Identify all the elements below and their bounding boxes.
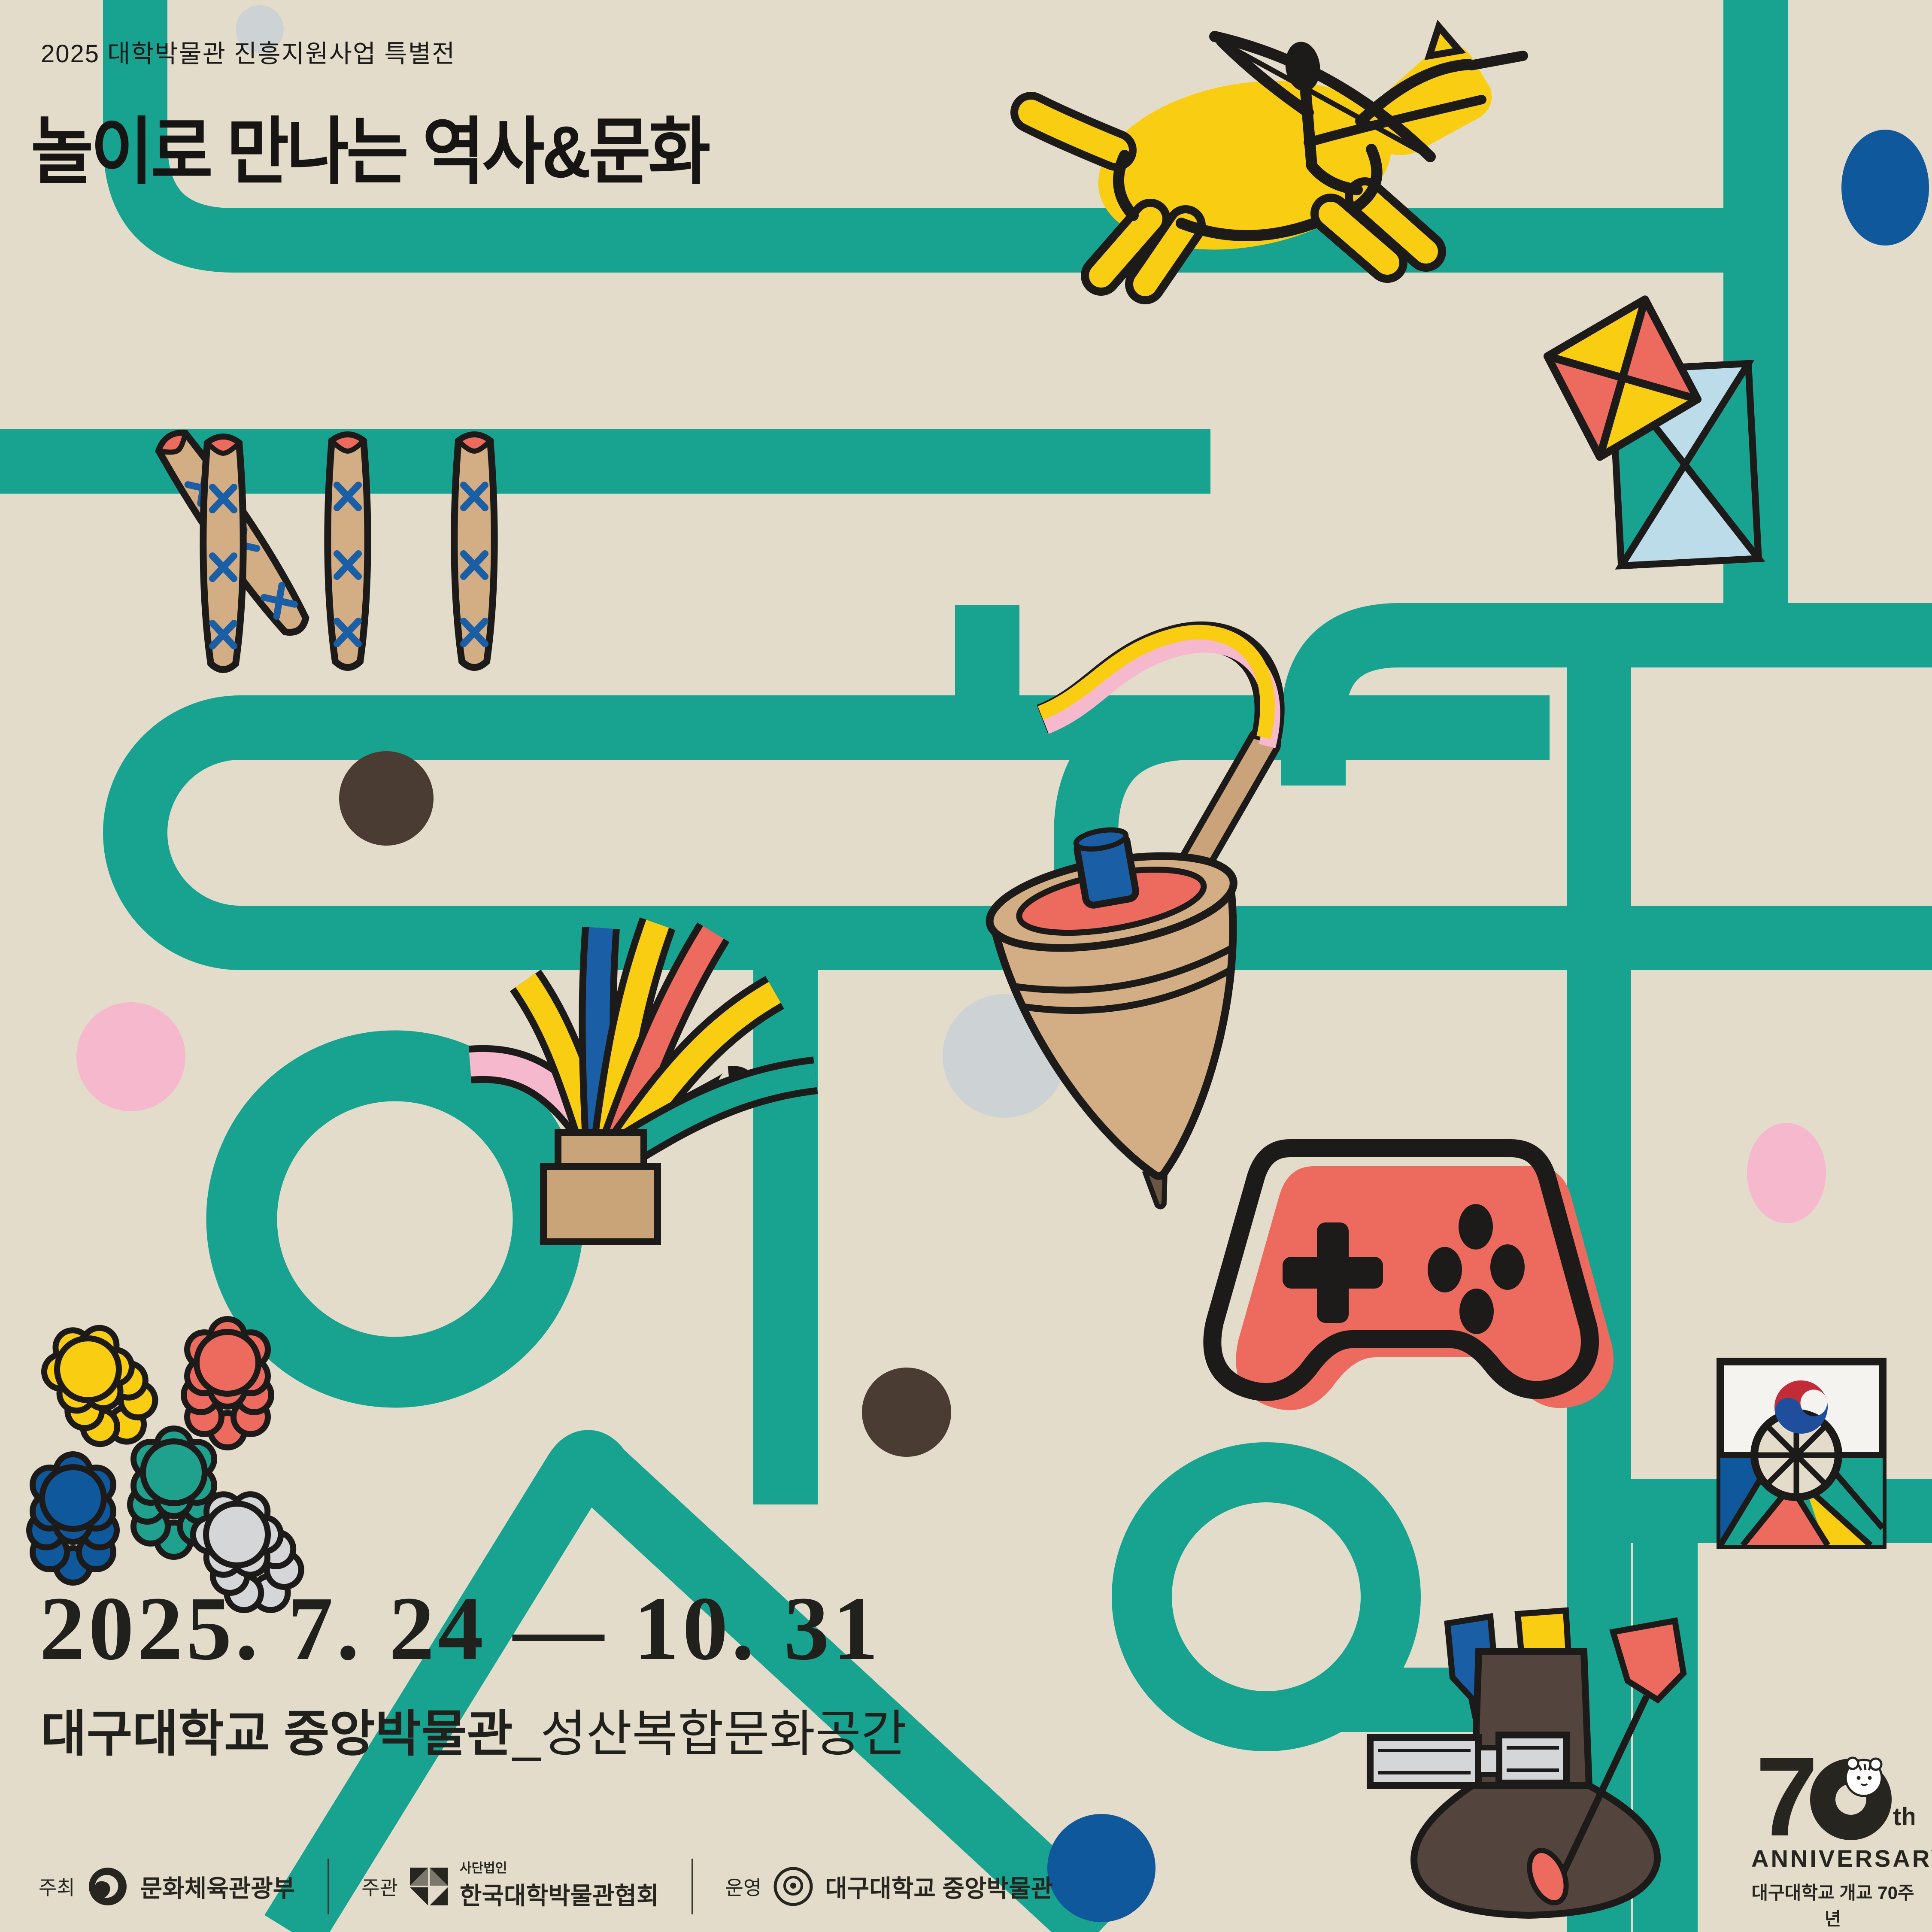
operator-label: 운영: [725, 1872, 762, 1901]
footer-divider: [328, 1859, 329, 1914]
kaum-logo-icon: [409, 1867, 449, 1906]
anniversary-word: ANNIVERSARY: [1751, 1844, 1914, 1872]
exhibition-dates: 2025. 7. 24 — 10. 31: [39, 1576, 882, 1681]
venue-annex: _성산복합문화공간: [513, 1706, 907, 1762]
operator-credit: 운영 대구대학교 중앙박물관: [725, 1866, 1053, 1907]
brown-dot-left: [339, 751, 434, 846]
tiger-mascot-icon: [1846, 1758, 1882, 1796]
host-name: 문화체육관광부: [140, 1869, 295, 1904]
blue-dot-top-right: [1841, 130, 1929, 246]
operator-name: 대구대학교 중앙박물관: [825, 1869, 1053, 1904]
pink-dot-right: [1747, 1123, 1826, 1223]
venue-main: 대구대학교 중앙박물관: [41, 1706, 513, 1762]
organizer-label: 주관: [361, 1872, 398, 1901]
organizer-pre: 사단법인: [460, 1862, 659, 1875]
blue-dot-bottom: [1047, 1814, 1156, 1922]
game-controller-illustration: [1212, 1148, 1614, 1410]
footer-divider: [692, 1859, 693, 1914]
70th-logo: 7 th: [1751, 1751, 1914, 1841]
exhibition-poster: 2025 대학박물관 진흥지원사업 특별전 놀이로 만나는 역사&문화 2025…: [0, 0, 1932, 1932]
organizer-name: 한국대학박물관협회: [460, 1877, 659, 1911]
host-credit: 주최 문화체육관광부: [39, 1865, 295, 1908]
anniversary-line1: 대구대학교 개교 70주년: [1751, 1878, 1914, 1931]
70th-anniversary-mark: 7 th ANNIVERSARY 대구대학교 개교 70주년 1956 ▶ 20…: [1751, 1751, 1914, 1932]
brown-dot-center: [862, 1368, 951, 1457]
eyebrow-text: 2025 대학박물관 진흥지원사업 특별전: [41, 33, 455, 70]
mcst-logo-icon: [86, 1865, 129, 1908]
svg-text:th: th: [1893, 1803, 1914, 1831]
daegu-univ-seal-icon: [773, 1866, 814, 1907]
pink-dot-left: [76, 1002, 185, 1111]
organizer-credit: 주관 사단법인 한국대학박물관협회: [361, 1862, 658, 1911]
poster-title: 놀이로 만나는 역사&문화: [31, 92, 708, 198]
credits-footer: 주최 문화체육관광부 주관 사단법인 한국대학박물관협회 운영: [39, 1859, 1053, 1914]
ttakji-card-illustration: [1720, 1362, 1883, 1545]
svg-text:7: 7: [1756, 1751, 1818, 1841]
pot-handles: [1370, 1735, 1567, 1786]
venue-line: 대구대학교 중앙박물관_성산복합문화공간: [41, 1693, 907, 1765]
host-label: 주최: [39, 1872, 75, 1901]
